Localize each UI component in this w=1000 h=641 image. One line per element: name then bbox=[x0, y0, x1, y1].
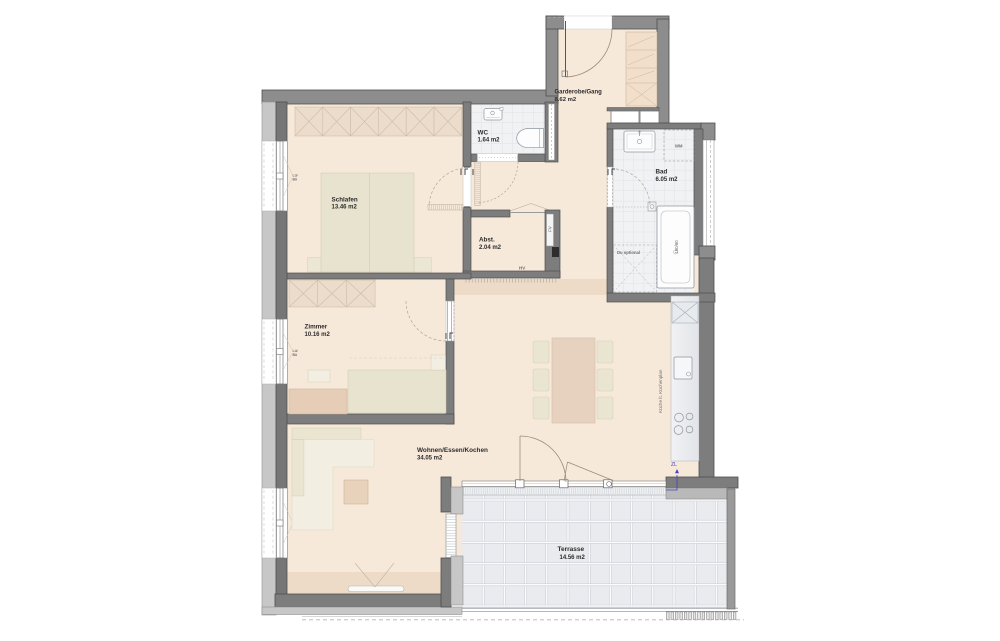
svg-text:180/80: 180/80 bbox=[674, 240, 679, 254]
svg-text:Bö: Bö bbox=[293, 178, 298, 182]
svg-text:Wohnen/Essen/Kochen: Wohnen/Essen/Kochen bbox=[417, 447, 488, 454]
svg-text:Küche lt. Küchenplan: Küche lt. Küchenplan bbox=[658, 369, 663, 413]
svg-text:Bö: Bö bbox=[293, 353, 298, 357]
svg-text:34.05 m2: 34.05 m2 bbox=[417, 456, 443, 462]
svg-text:10.16 m2: 10.16 m2 bbox=[305, 332, 331, 338]
svg-text:WC: WC bbox=[478, 130, 489, 137]
svg-text:Du optional: Du optional bbox=[617, 250, 640, 255]
svg-text:6.05 m2: 6.05 m2 bbox=[656, 177, 679, 183]
svg-text:Terrasse: Terrasse bbox=[558, 546, 585, 553]
svg-text:Abst.: Abst. bbox=[479, 237, 495, 244]
svg-text:Schlafen: Schlafen bbox=[332, 197, 358, 204]
svg-text:13.46 m2: 13.46 m2 bbox=[332, 205, 358, 211]
svg-text:Zimmer: Zimmer bbox=[305, 324, 328, 331]
svg-text:Bad: Bad bbox=[656, 169, 668, 176]
svg-text:2.04 m2: 2.04 m2 bbox=[479, 245, 502, 251]
svg-text:8.62 m2: 8.62 m2 bbox=[555, 97, 577, 103]
svg-text:14.56 m2: 14.56 m2 bbox=[560, 555, 586, 561]
svg-text:FV: FV bbox=[548, 226, 553, 232]
svg-text:WM: WM bbox=[675, 144, 683, 149]
svg-text:1.64 m2: 1.64 m2 bbox=[478, 138, 501, 144]
svg-text:ZL: ZL bbox=[671, 462, 677, 468]
svg-text:Garderobe/Gang: Garderobe/Gang bbox=[555, 90, 603, 96]
svg-text:HV: HV bbox=[519, 266, 525, 271]
